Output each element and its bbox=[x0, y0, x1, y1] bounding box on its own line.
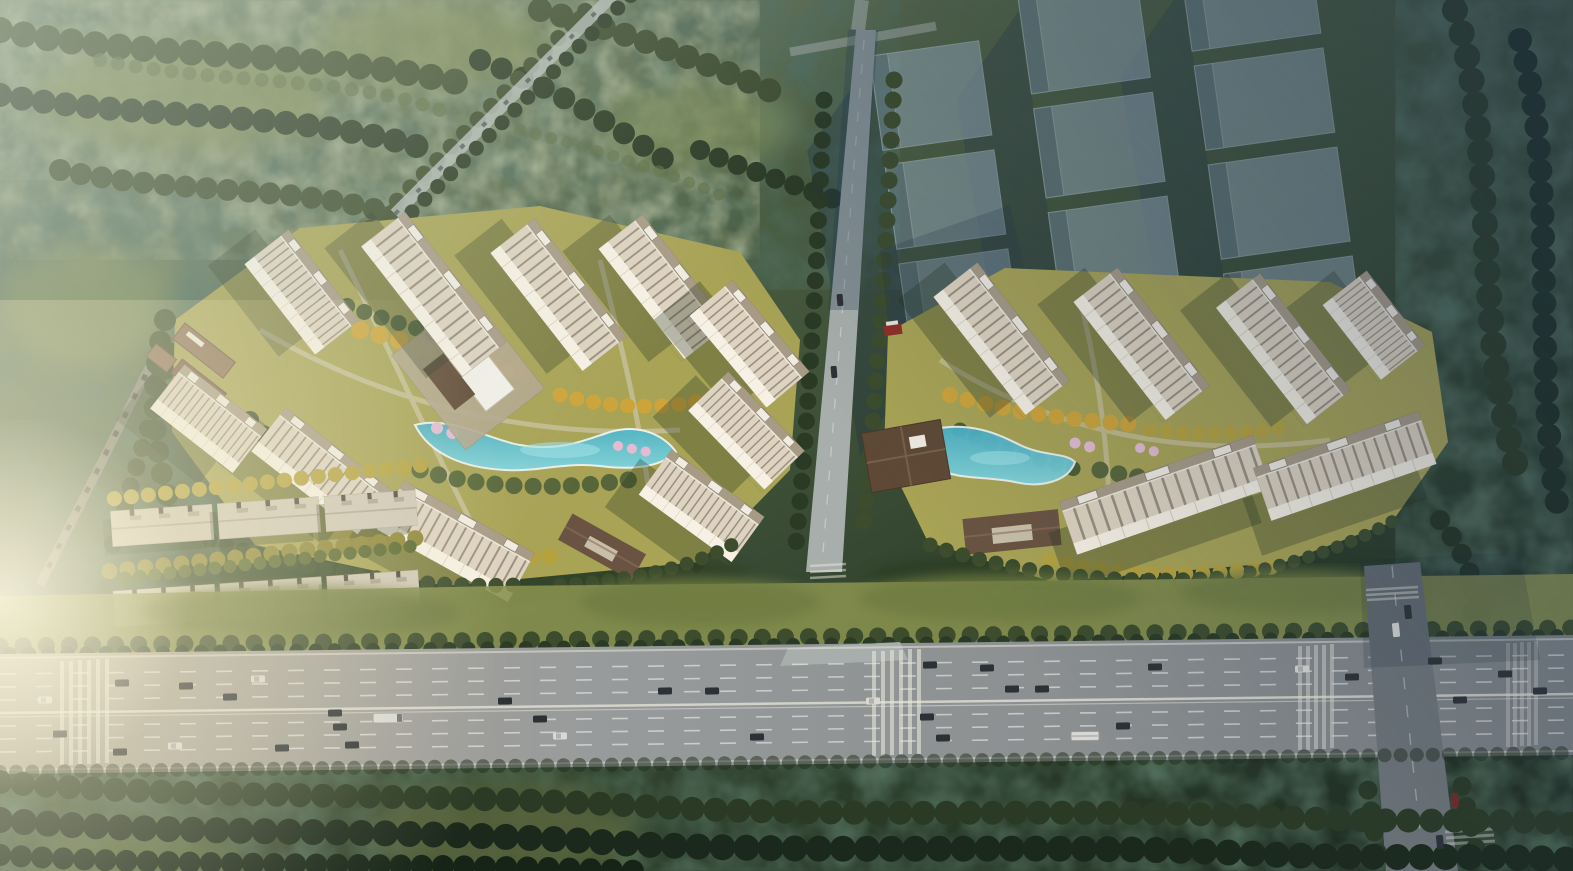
rendering-canvas bbox=[0, 0, 1573, 871]
aerial-site-rendering: Hazy aerial rendering of a two-compound … bbox=[0, 0, 1573, 871]
sun-glare-core bbox=[0, 420, 360, 820]
